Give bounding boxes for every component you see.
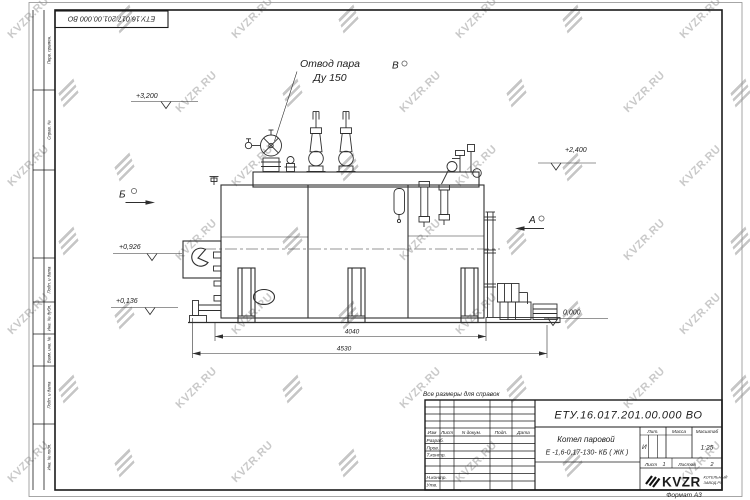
left-margin-strip bbox=[33, 10, 55, 490]
product-name: Котел паровой bbox=[557, 435, 615, 444]
col-ndoc: N докум. bbox=[462, 430, 481, 436]
elevation-mark-2400: +2,400 bbox=[538, 147, 596, 170]
view-b-arrow bbox=[146, 200, 156, 205]
elevation-mark-3200: +3,200 bbox=[131, 93, 198, 109]
annotations: Отвод пара Ду 150 Б В А +3,200 +2,400 bbox=[111, 58, 608, 398]
kvzr-logo-icon bbox=[646, 476, 660, 487]
margin-label: Подп. и дата bbox=[47, 266, 52, 294]
logo-text: KVZR bbox=[662, 475, 701, 490]
view-v-label: В bbox=[392, 61, 399, 72]
view-marker-b: Б bbox=[119, 188, 155, 204]
dimension-4040: 4040 bbox=[215, 323, 486, 342]
margin-label: Подп. и дата bbox=[47, 381, 52, 409]
format-note: Формат А3 bbox=[666, 492, 702, 499]
manhole bbox=[254, 290, 275, 305]
elevation-mark-0926: +0,926 bbox=[113, 244, 182, 261]
row-nkontr: Н.контр. bbox=[427, 475, 447, 481]
lit-label: Лит. bbox=[646, 429, 658, 435]
sheets-number: 2 bbox=[709, 462, 713, 468]
margin-label: Перв. примен. bbox=[47, 36, 52, 65]
feed-pump bbox=[486, 284, 560, 323]
row-razrab: Разраб. bbox=[427, 438, 444, 444]
scale-label: Масштаб bbox=[696, 429, 719, 435]
sheet-number: 1 bbox=[662, 462, 665, 468]
elevation-value: +3,200 bbox=[136, 93, 158, 100]
top-stamp-number: ЕТУ.16.017.201.00.000 ВО bbox=[67, 14, 155, 23]
boiler-side-view bbox=[183, 112, 560, 323]
blowdown-fitting bbox=[190, 301, 222, 323]
top-corner-stamp: ЕТУ.16.017.201.00.000 ВО bbox=[55, 11, 168, 28]
burner bbox=[183, 241, 221, 301]
shell-top-left-valve bbox=[210, 177, 219, 186]
margin-label: Инв. № дубл. bbox=[47, 305, 52, 331]
drum-nozzle bbox=[285, 157, 297, 172]
row-tkontr: Т.контр. bbox=[427, 453, 446, 459]
view-marker-v: В bbox=[392, 61, 407, 72]
elevation-value: +0,136 bbox=[116, 298, 138, 305]
title-block: Изм Лист N докум. Подп. Дата Разраб. Про… bbox=[425, 400, 728, 499]
lifting-ring bbox=[473, 169, 482, 178]
elevation-value: +2,400 bbox=[565, 147, 587, 154]
col-data: Дата bbox=[516, 430, 530, 436]
elevation-value: 0,000 bbox=[563, 310, 581, 317]
view-a-arrow bbox=[515, 226, 525, 231]
sheets-label: Листов bbox=[677, 462, 696, 468]
safety-valve bbox=[307, 112, 326, 172]
elevation-value: +0,926 bbox=[119, 244, 141, 251]
scale-value: 1:25 bbox=[701, 445, 714, 452]
downcomer-pipe bbox=[485, 212, 497, 318]
logo-subtext-2: ЗАВОД.РУ bbox=[704, 481, 723, 485]
burner-scroll bbox=[192, 248, 208, 266]
revision-table-headers: Изм Лист N докум. Подп. Дата Разраб. Про… bbox=[427, 430, 531, 489]
dimension-value: 4530 bbox=[337, 346, 352, 353]
dimension-4530: 4530 bbox=[193, 318, 548, 358]
view-marker-a: А bbox=[515, 215, 544, 231]
doc-number: ЕТУ.16.017.201.00.000 ВО bbox=[554, 410, 702, 422]
col-izm: Изм bbox=[428, 430, 438, 436]
steam-outlet-callout: Отвод пара Ду 150 bbox=[275, 58, 361, 141]
lever-safety-device bbox=[442, 145, 482, 185]
margin-label: Взам. инв. № bbox=[47, 336, 52, 363]
margin-label: Справ. № bbox=[47, 120, 52, 140]
company-logo: KVZR КОТЕЛЬНЫЙ ЗАВОД.РУ bbox=[646, 475, 728, 490]
product-model: Е -1,6-0,17-130- КБ ( ЖК ) bbox=[546, 450, 629, 457]
view-a-label: А bbox=[528, 215, 536, 226]
gauge-column bbox=[439, 185, 450, 225]
col-list: Лист bbox=[440, 430, 453, 436]
drawing-sheet: Перв. примен. Справ. № Подп. и дата Инв.… bbox=[0, 0, 750, 500]
col-podp: Подп. bbox=[495, 430, 508, 436]
water-level-gauges bbox=[394, 182, 450, 228]
view-b-label: Б bbox=[119, 190, 126, 201]
row-utv: Утв. bbox=[427, 483, 438, 489]
dimension-value: 4040 bbox=[345, 329, 360, 336]
safety-valve bbox=[337, 112, 356, 172]
left-margin-labels: Перв. примен. Справ. № Подп. и дата Инв.… bbox=[47, 36, 52, 471]
margin-label: Инв. № подл. bbox=[47, 444, 52, 471]
steam-outlet-label: Отвод пара bbox=[300, 58, 360, 70]
logo-subtext-1: КОТЕЛЬНЫЙ bbox=[704, 476, 728, 480]
sight-glass bbox=[394, 189, 405, 215]
lit-value: И bbox=[642, 444, 647, 451]
gauge-column bbox=[419, 182, 430, 228]
steam-outlet-size: Ду 150 bbox=[312, 72, 346, 84]
mass-label: Масса bbox=[672, 429, 687, 435]
sheet-label: Лист bbox=[644, 462, 657, 468]
elevation-mark-0136: +0,136 bbox=[111, 298, 178, 315]
reference-note: Все размеры для справок bbox=[423, 390, 501, 398]
row-prov: Пров. bbox=[427, 445, 440, 451]
